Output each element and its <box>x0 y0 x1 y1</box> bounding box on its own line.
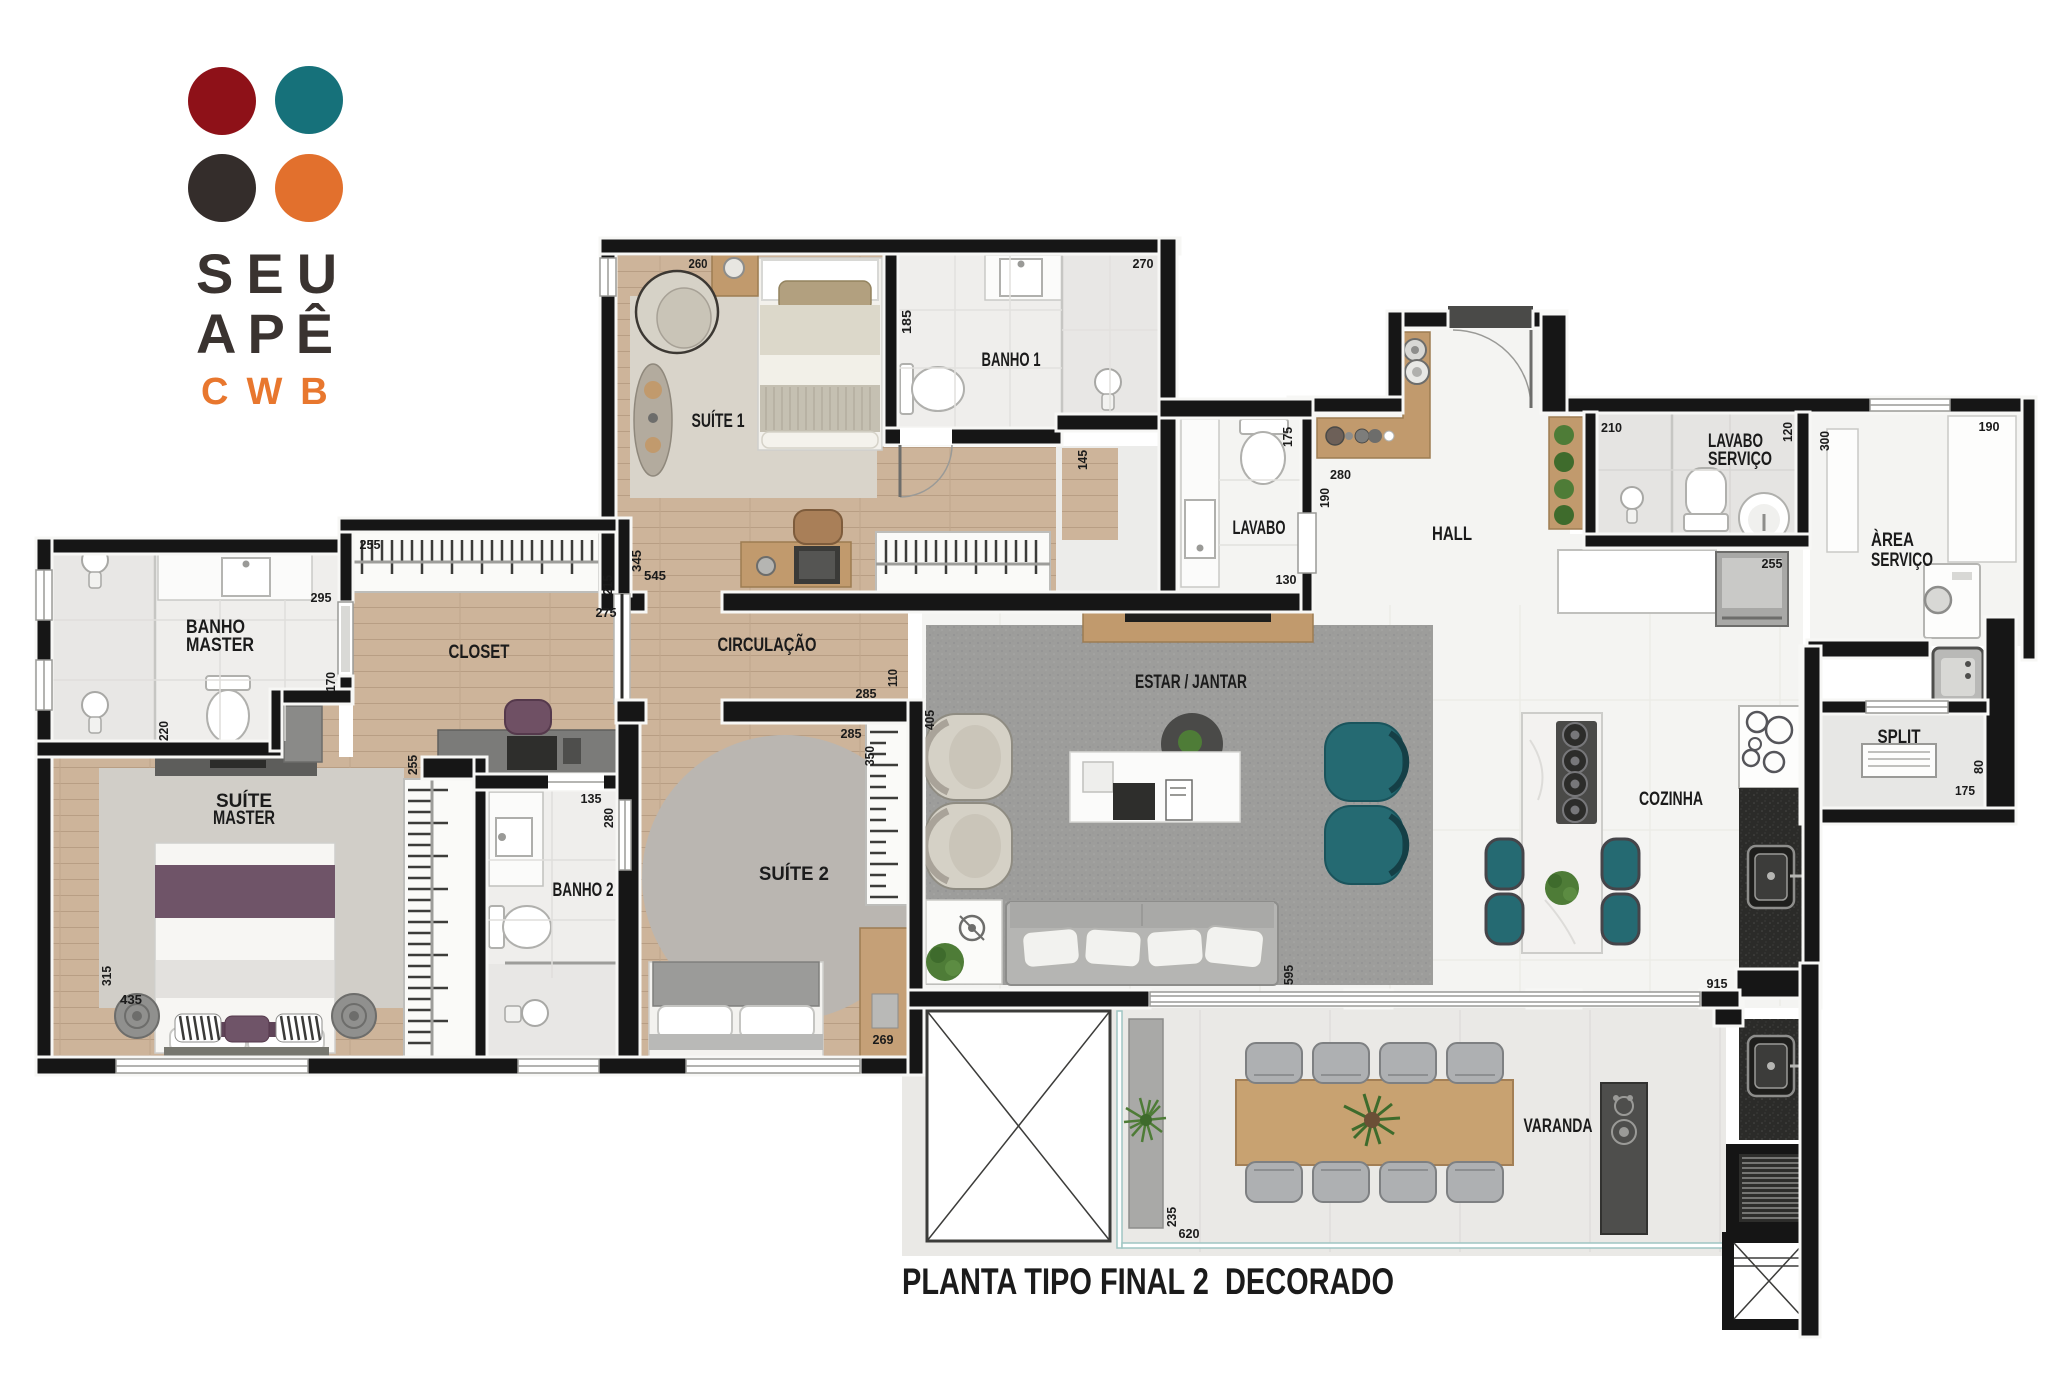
svg-text:190: 190 <box>1317 488 1332 508</box>
svg-text:SERVIÇO: SERVIÇO <box>1708 449 1772 470</box>
svg-text:190: 190 <box>1979 419 2000 434</box>
svg-text:ÀREA: ÀREA <box>1871 529 1914 551</box>
svg-text:285: 285 <box>856 686 877 701</box>
svg-text:CWB: CWB <box>201 371 346 413</box>
svg-text:595: 595 <box>1281 965 1296 985</box>
svg-text:COZINHA: COZINHA <box>1639 789 1703 810</box>
svg-text:210: 210 <box>1601 420 1622 435</box>
svg-text:300: 300 <box>1817 431 1832 451</box>
svg-text:295: 295 <box>311 590 332 605</box>
svg-text:MASTER: MASTER <box>213 808 275 829</box>
svg-text:620: 620 <box>1179 1226 1200 1241</box>
svg-text:350: 350 <box>862 746 877 766</box>
svg-text:315: 315 <box>99 966 114 986</box>
svg-text:435: 435 <box>120 992 142 1007</box>
svg-text:285: 285 <box>841 726 862 741</box>
svg-text:255: 255 <box>405 755 420 775</box>
svg-text:145: 145 <box>1075 450 1090 470</box>
svg-text:170: 170 <box>323 672 338 692</box>
svg-text:280: 280 <box>601 808 616 828</box>
svg-text:ESTAR / JANTAR: ESTAR / JANTAR <box>1135 672 1247 693</box>
svg-text:HALL: HALL <box>1432 524 1472 545</box>
svg-text:175: 175 <box>1955 783 1975 798</box>
svg-text:405: 405 <box>922 710 937 730</box>
svg-text:260: 260 <box>689 256 708 271</box>
svg-text:BANHO 2: BANHO 2 <box>553 880 614 901</box>
svg-text:345: 345 <box>629 550 644 572</box>
svg-text:255: 255 <box>360 537 381 552</box>
svg-text:MASTER: MASTER <box>186 635 254 656</box>
svg-text:185: 185 <box>899 310 914 334</box>
svg-text:APÊ: APÊ <box>196 302 344 365</box>
svg-text:SUÍTE 1: SUÍTE 1 <box>692 410 745 432</box>
svg-text:545: 545 <box>644 568 666 583</box>
svg-text:SUÍTE 2: SUÍTE 2 <box>759 863 829 885</box>
svg-text:SEU: SEU <box>196 242 350 305</box>
svg-text:SERVIÇO: SERVIÇO <box>1871 550 1933 571</box>
svg-text:255: 255 <box>1762 556 1783 571</box>
svg-text:80: 80 <box>1971 760 1986 774</box>
svg-text:CLOSET: CLOSET <box>449 642 510 663</box>
svg-text:915: 915 <box>1707 976 1728 991</box>
svg-text:PLANTA TIPO FINAL 2 DECORADO: PLANTA TIPO FINAL 2 DECORADO <box>902 1261 1394 1302</box>
svg-text:280: 280 <box>1330 467 1351 482</box>
svg-text:235: 235 <box>1164 1207 1179 1227</box>
svg-text:LAVABO: LAVABO <box>1233 518 1286 539</box>
svg-text:130: 130 <box>1276 572 1297 587</box>
svg-text:110: 110 <box>885 669 900 687</box>
svg-text:275: 275 <box>596 605 617 620</box>
svg-text:175: 175 <box>1280 427 1295 447</box>
svg-text:270: 270 <box>1133 256 1154 271</box>
svg-text:215: 215 <box>600 575 615 595</box>
svg-text:135: 135 <box>581 791 602 806</box>
svg-text:220: 220 <box>156 721 171 741</box>
svg-text:SPLIT: SPLIT <box>1878 727 1921 748</box>
svg-text:269: 269 <box>873 1032 894 1047</box>
svg-text:120: 120 <box>1780 422 1795 442</box>
svg-text:BANHO 1: BANHO 1 <box>982 350 1041 371</box>
svg-text:VARANDA: VARANDA <box>1524 1116 1593 1137</box>
svg-text:CIRCULAÇÃO: CIRCULAÇÃO <box>718 634 817 656</box>
